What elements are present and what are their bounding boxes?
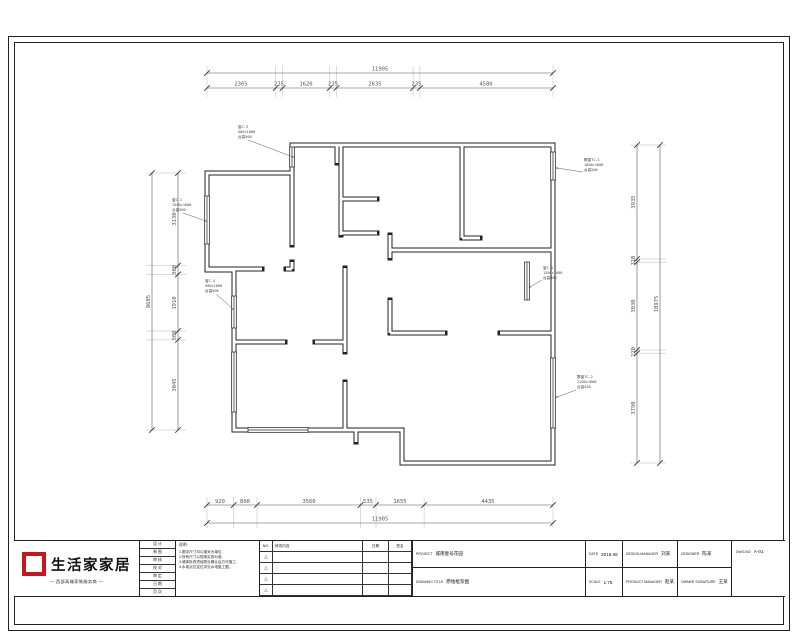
project-cell: PROJECT 城南壹号花园 DRAWING TITLE 原始框架图	[413, 541, 586, 596]
revision-cell	[389, 574, 412, 585]
designer-cell: DESIGNER 陈某 OWNER SIGNATURE 王某	[678, 541, 732, 596]
drawing-sheet: { "dimensions": { "top": {"total":"11905…	[0, 0, 800, 640]
dim-label: 920	[215, 499, 225, 505]
design-manager-value: 刘某	[661, 551, 670, 557]
notes-cell: 说明: 1.图中尺寸均以毫米为单位; 2.所有尺寸以现场实测为准; 3.墙体拆改…	[176, 541, 260, 596]
window-symbols	[205, 147, 556, 433]
dim-label: 535	[363, 499, 373, 505]
revision-header: 签名	[389, 541, 412, 552]
annotation-text: 窗C-5	[543, 265, 553, 270]
revision-cell	[389, 552, 412, 563]
annotation-text: 台高500	[584, 167, 598, 172]
dim-label: 235	[274, 82, 284, 88]
dim-label: 4580	[479, 82, 492, 88]
annotation-text: 台高450	[577, 384, 591, 389]
dim-label: 1655	[393, 499, 406, 505]
manager-cell: DESIGN MANAGER 刘某 PRODUCT MANAGER 赵某	[623, 541, 678, 596]
dimension-ticks	[149, 70, 663, 526]
annotation-text: 窗C-3	[238, 124, 248, 129]
revision-cell	[273, 574, 363, 585]
dim-label: 3935	[631, 195, 637, 208]
crew-row: 审 定	[140, 573, 175, 581]
drawing-title-label: DRAWING TITLE	[416, 580, 443, 584]
revision-cell	[363, 574, 389, 585]
window-icon	[248, 428, 308, 433]
annotation-text: 台高900	[172, 207, 186, 212]
project-value: 城南壹号花园	[435, 551, 463, 557]
revision-cell	[273, 563, 363, 574]
revision-cell	[363, 563, 389, 574]
date-scale-cell: DATE 2016.06 SCALE 1:75	[586, 541, 623, 596]
design-manager-label: DESIGN MANAGER	[626, 552, 658, 556]
dwgno-value: A-01	[754, 549, 764, 554]
dim-label: 300	[172, 331, 178, 341]
dim-label: 2635	[368, 82, 381, 88]
title-block: 生活家家居 — 西部高端家装服务商 — 设 计 制 图 审 核 校 对 审 定 …	[14, 540, 785, 597]
dim-label: 235	[328, 82, 338, 88]
revision-cell	[273, 585, 363, 596]
dim-label: 1910	[172, 296, 178, 309]
product-manager-value: 赵某	[665, 579, 674, 585]
dwgno-cell: DWG.NO A-01	[732, 541, 785, 596]
dwgno-label: DWG.NO	[736, 550, 751, 554]
dim-label: 3560	[302, 499, 315, 505]
revision-table: NO. 修改内容 日期 签名 △ △ △ △	[260, 541, 413, 596]
dim-right-total: 10975	[654, 296, 660, 313]
annotation-text: 窗C-1	[172, 197, 182, 202]
scale-value: 1:75	[603, 580, 612, 585]
annotation-leader-dots	[205, 156, 558, 398]
product-manager-label: PRODUCT MANAGER	[626, 580, 662, 584]
annotation-text: 飘窗TC-2	[577, 374, 593, 379]
revision-mark: △	[260, 552, 273, 563]
window-icon	[551, 152, 556, 180]
project-label: PROJECT	[416, 552, 432, 556]
annotation-text: 2100×1600	[577, 380, 596, 384]
crew-row: 设 计	[140, 541, 175, 549]
crew-row: 日 期	[140, 581, 175, 589]
crew-row: 审 核	[140, 557, 175, 565]
owner-signature-label: OWNER SIGNATURE	[681, 580, 716, 584]
dim-label: 4435	[481, 499, 494, 505]
annotation-text: 1200×1600	[543, 271, 562, 275]
dim-label: 300	[172, 265, 178, 275]
revision-header: 日期	[363, 541, 389, 552]
crew-row: 页 次	[140, 589, 175, 596]
revision-header: NO.	[260, 541, 273, 552]
revision-mark: △	[260, 585, 273, 596]
brand-tagline: — 西部高端家装服务商 —	[50, 579, 104, 585]
dim-label: 235	[412, 82, 422, 88]
dim-label: 2365	[234, 82, 247, 88]
dim-label: 110	[631, 347, 637, 357]
revision-cell	[389, 585, 412, 596]
notes-title: 说明:	[179, 543, 256, 549]
revision-mark: △	[260, 563, 273, 574]
dim-top-total: 11905	[372, 67, 389, 73]
dim-label: 1620	[299, 82, 312, 88]
crew-row: 校 对	[140, 565, 175, 573]
designer-label: DESIGNER	[681, 552, 699, 556]
dim-label: 110	[631, 256, 637, 266]
brand-name: 生活家家居	[51, 554, 131, 575]
annotation-text: 600×1600	[238, 130, 255, 134]
crew-table: 设 计 制 图 审 核 校 对 审 定 日 期 页 次	[140, 541, 176, 596]
dimension-lines	[146, 66, 666, 528]
annotation-text: 飘窗TC-1	[584, 157, 600, 162]
revision-cell	[273, 552, 363, 563]
window-icon	[551, 358, 556, 428]
dim-bottom-total: 11905	[372, 517, 389, 523]
designer-value: 陈某	[702, 551, 711, 557]
revision-header: 修改内容	[273, 541, 363, 552]
owner-signature-value: 王某	[719, 579, 728, 585]
crew-row: 制 图	[140, 549, 175, 557]
dim-label: 3045	[172, 378, 178, 391]
annotation-text: 1500×1600	[172, 203, 191, 207]
revision-mark: △	[260, 574, 273, 585]
dim-label: 3790	[631, 401, 637, 414]
dim-label: 800	[240, 499, 250, 505]
logo-cell: 生活家家居 — 西部高端家装服务商 —	[14, 541, 140, 596]
dim-left-total: 8685	[146, 295, 152, 308]
annotation-text: 900×1600	[205, 284, 222, 288]
drawing-title-value: 原始框架图	[446, 579, 469, 585]
annotation-text: 台高900	[205, 288, 219, 293]
annotation-text: 窗C-4	[205, 278, 215, 283]
walls	[207, 145, 553, 463]
date-value: 2016.06	[601, 552, 618, 557]
revision-cell	[363, 585, 389, 596]
revision-cell	[363, 552, 389, 563]
date-label: DATE	[589, 552, 598, 556]
scale-label: SCALE	[589, 580, 600, 584]
window-icon	[232, 352, 237, 412]
window-icon	[205, 196, 210, 244]
notes-line: 4.水电点位定位详见水电施工图。	[179, 565, 256, 570]
window-icon	[525, 262, 530, 300]
annotation-text: 台高900	[543, 275, 557, 280]
annotation-text: 1800×1600	[584, 163, 603, 167]
annotation-text: 台高900	[238, 134, 252, 139]
revision-cell	[389, 563, 412, 574]
window-icon	[232, 296, 237, 328]
dim-label: 3030	[631, 299, 637, 312]
dim-label: 3130	[172, 212, 178, 225]
brand-logo-icon	[22, 552, 46, 576]
